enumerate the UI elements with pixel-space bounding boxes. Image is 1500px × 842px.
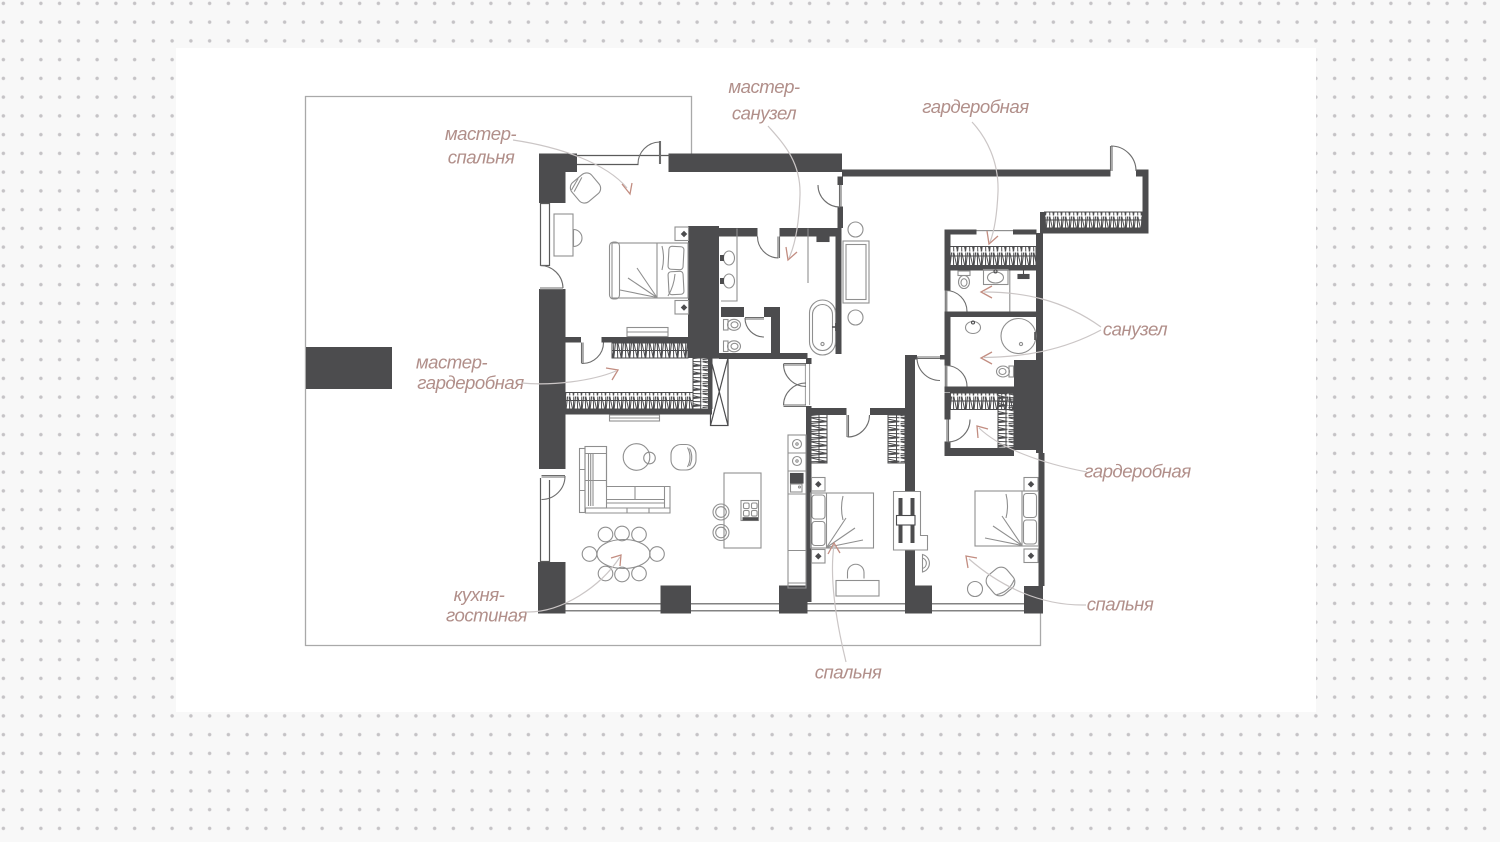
svg-text:гостиная: гостиная bbox=[446, 605, 528, 626]
svg-text:спальня: спальня bbox=[448, 147, 515, 168]
svg-text:мастер-: мастер- bbox=[445, 123, 517, 144]
svg-text:спальня: спальня bbox=[815, 662, 882, 683]
svg-text:гардеробная: гардеробная bbox=[922, 96, 1029, 117]
svg-text:гардеробная: гардеробная bbox=[417, 372, 524, 393]
svg-text:мастер-: мастер- bbox=[728, 76, 800, 97]
svg-text:санузел: санузел bbox=[732, 103, 797, 124]
svg-text:спальня: спальня bbox=[1087, 594, 1154, 615]
svg-text:кухня-: кухня- bbox=[454, 584, 505, 605]
svg-text:гардеробная: гардеробная bbox=[1084, 461, 1191, 482]
svg-text:санузел: санузел bbox=[1103, 319, 1168, 340]
svg-text:мастер-: мастер- bbox=[416, 352, 488, 373]
